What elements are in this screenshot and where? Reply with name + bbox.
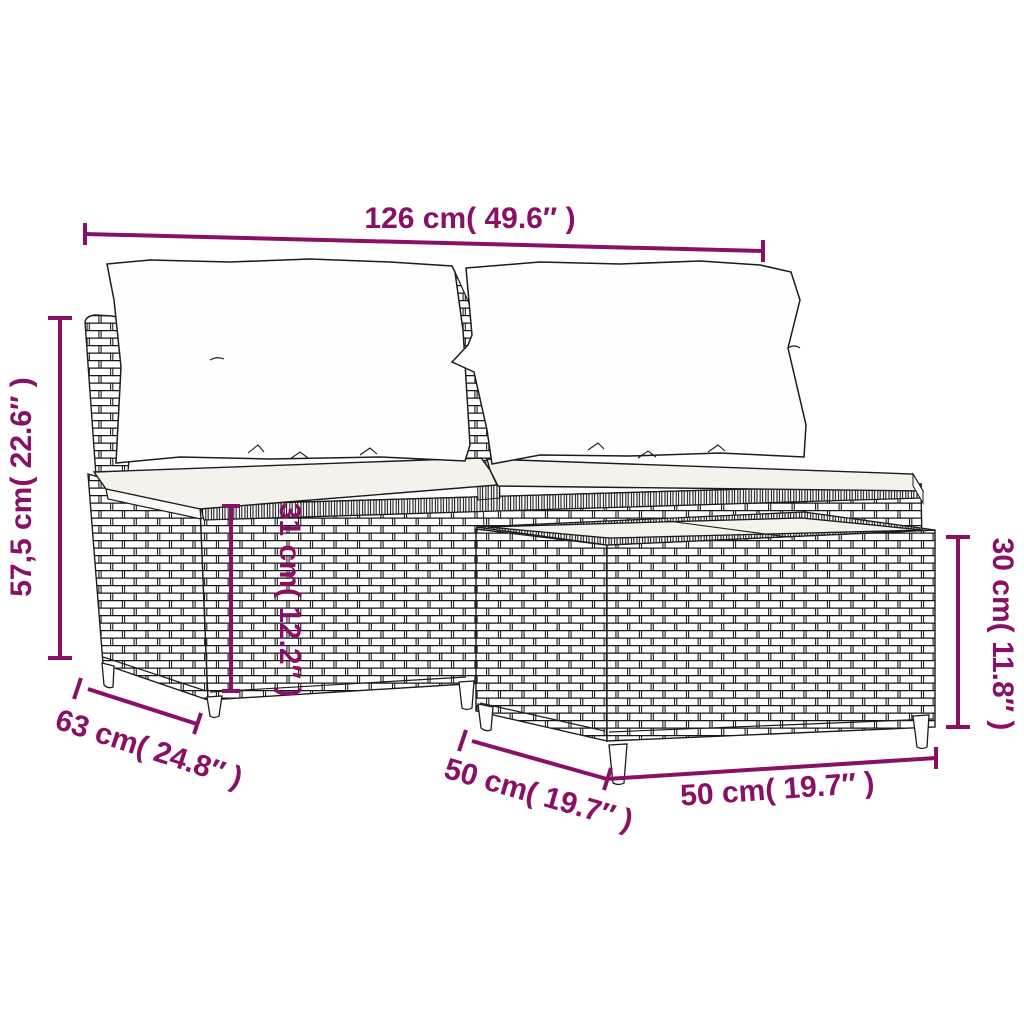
svg-text:126 cm( 49.6″ ): 126 cm( 49.6″ ) (364, 202, 575, 235)
svg-text:30 cm( 11.8″ ): 30 cm( 11.8″ ) (986, 538, 1019, 731)
svg-text:57,5 cm( 22.6″ ): 57,5 cm( 22.6″ ) (5, 377, 38, 597)
svg-text:31 cm( 12.2″ ): 31 cm( 12.2″ ) (273, 503, 306, 697)
